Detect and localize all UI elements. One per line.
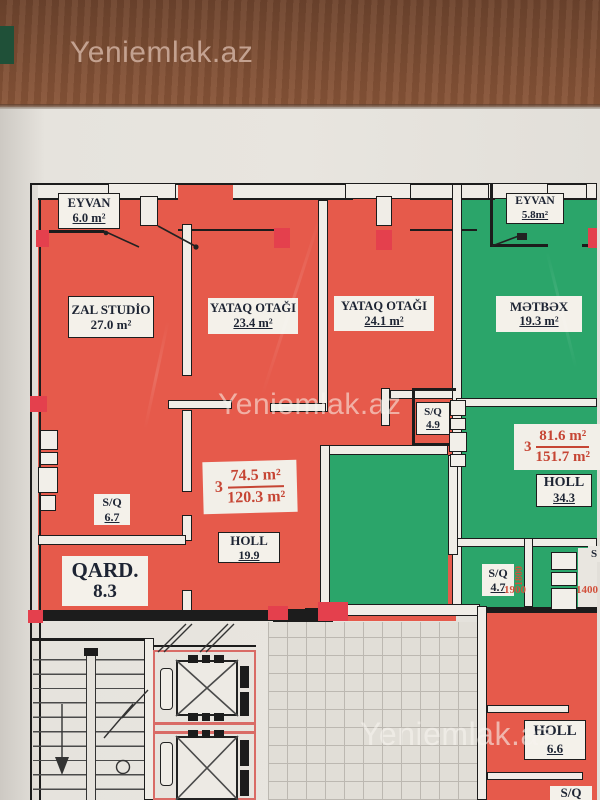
room-label-holl-199: HOLL 19.9: [218, 532, 280, 563]
bathroom-fixture: [38, 467, 58, 493]
elevator-guide-rail: [240, 692, 249, 716]
area-fraction: 81.6 m² 151.7 m²: [536, 427, 591, 467]
room-label-sq-67: S/Q 6.7: [94, 494, 130, 525]
room-area: 5.8m²: [522, 209, 548, 222]
wall-pillar: [376, 196, 392, 226]
wall-marker: [36, 230, 49, 247]
wall: [490, 184, 493, 246]
wall-marker: [376, 230, 392, 250]
wall-pillar: [586, 183, 597, 199]
room-name: HOLL: [230, 533, 268, 548]
room-name: S/Q: [561, 786, 582, 800]
elevator-shaft-divider: [155, 722, 254, 725]
wall: [182, 410, 192, 492]
dimension-1800: 1800: [514, 546, 528, 586]
elevator-door-part: [214, 713, 224, 721]
wall-marker: [28, 610, 43, 623]
room-area: 19.3 m²: [519, 314, 558, 329]
wall-marker: [274, 228, 290, 248]
living-area: 81.6 m²: [536, 427, 589, 448]
wall: [318, 200, 328, 412]
elevator-cab: [176, 736, 238, 800]
room-area: 23.4 m²: [233, 316, 272, 331]
wall: [448, 455, 458, 555]
room-area: 4.9: [426, 419, 440, 432]
room-label-sq-bottom-partial: S/Q: [550, 786, 592, 800]
room-name: EYVAN: [515, 195, 554, 209]
elevator-door-part: [202, 730, 210, 738]
room-label-metbex: MƏTBƏX 19.3 m²: [496, 296, 582, 332]
paper-edge-shadow: [0, 104, 600, 109]
wall-marker: [588, 228, 597, 248]
room-name: HOLL: [544, 475, 584, 492]
wall: [490, 244, 548, 247]
room-count: 3: [524, 439, 532, 456]
common-corridor-tiles: [268, 622, 478, 800]
floorplan-photo: Yeniemlak.az: [0, 0, 600, 800]
room-name: YATAQ OTAĞI: [210, 301, 296, 316]
elevator-guide-rail: [240, 666, 249, 688]
bathroom-fixture: [40, 430, 58, 450]
wall-marker: [30, 396, 47, 412]
room-area: 8.3: [93, 582, 117, 603]
elevator-guide-rail: [160, 742, 173, 786]
elevator-door-part: [188, 655, 198, 663]
room-label-yataq-2: YATAQ OTAĞI 24.1 m²: [334, 296, 434, 331]
closet-fixture: [551, 572, 577, 586]
room-name: S/Q: [488, 566, 507, 580]
elevator-guide-rail: [160, 668, 173, 710]
window-opening: [178, 185, 233, 198]
bathroom-fixture: [40, 495, 56, 511]
room-name: ZAL STUDİO: [71, 302, 150, 317]
wall: [320, 445, 330, 612]
bathroom-fixture: [40, 452, 58, 465]
room-area: 27.0 m²: [91, 317, 132, 332]
wall: [182, 224, 192, 376]
closet-fixture: [449, 432, 467, 452]
room-area: 34.3: [553, 491, 575, 506]
closet-fixture: [551, 588, 577, 610]
room-area: 6.0 m²: [73, 211, 106, 226]
elevator-door-part: [202, 655, 210, 663]
room-label-sq-partial: S: [588, 546, 600, 562]
room-name: EYVAN: [68, 196, 111, 211]
closet-fixture: [450, 400, 466, 416]
wall-marker: [318, 602, 348, 621]
closet-fixture: [551, 552, 577, 570]
watermark-top: Yeniemlak.az: [70, 36, 253, 70]
room-label-zal-studio: ZAL STUDİO 27.0 m²: [68, 296, 154, 338]
wall-marker: [268, 606, 288, 620]
elevator-door-part: [214, 730, 224, 738]
stair-rail-cap: [84, 648, 98, 656]
wall: [43, 610, 273, 621]
wall: [456, 398, 597, 407]
green-inner-room: [330, 455, 448, 605]
room-label-eyvan-red: EYVAN 6.0 m²: [58, 193, 120, 229]
closet-fixture: [450, 454, 466, 467]
wall: [330, 604, 480, 616]
table-corner-object: [0, 26, 14, 64]
room-area: 6.7: [105, 510, 120, 524]
wall-pillar: [140, 196, 158, 226]
total-area: 151.7 m²: [536, 448, 591, 467]
wall: [30, 638, 150, 641]
room-name: S: [591, 548, 597, 561]
room-label-sq-49: S/Q 4.9: [416, 402, 450, 435]
elevator-door-part: [214, 655, 224, 663]
wall: [487, 772, 583, 780]
room-name: S/Q: [102, 495, 121, 509]
wall: [153, 645, 256, 647]
room-label-holl-343: HOLL 34.3: [536, 474, 592, 507]
elevator-door-part: [188, 730, 198, 738]
room-name: QARD.: [71, 559, 138, 582]
room-label-eyvan-green: EYVAN 5.8m²: [506, 193, 564, 224]
dimension-1400: 1400: [576, 584, 600, 597]
watermark-middle: Yeniemlak.az: [218, 388, 401, 422]
room-label-qard: QARD. 8.3: [62, 556, 148, 606]
wall: [320, 445, 448, 455]
apartment-summary-red: 3 74.5 m² 120.3 m²: [202, 460, 297, 514]
wall: [487, 705, 569, 713]
elevator-guide-rail: [240, 770, 249, 796]
elevator-cab: [176, 660, 238, 716]
wall: [233, 198, 353, 200]
dimension-1900: 1900: [504, 584, 542, 597]
room-area: 19.9: [239, 548, 260, 562]
wall: [40, 230, 104, 233]
wall: [412, 388, 415, 445]
wall: [410, 229, 477, 231]
total-area: 120.3 m²: [227, 487, 286, 509]
room-area: 24.1 m²: [364, 314, 403, 329]
room-count: 3: [215, 479, 223, 497]
watermark-bottom: Yeniemlak.az: [360, 716, 555, 753]
wall: [412, 388, 456, 391]
room-name: YATAQ OTAĞI: [341, 299, 427, 314]
apartment-summary-green: 3 81.6 m² 151.7 m²: [514, 424, 600, 470]
living-area: 74.5 m²: [227, 465, 284, 488]
room-name: S/Q: [424, 406, 442, 419]
elevator-door-part: [188, 713, 198, 721]
wall: [38, 535, 186, 545]
elevator-door-part: [202, 713, 210, 721]
wall: [178, 229, 277, 231]
area-fraction: 74.5 m² 120.3 m²: [226, 465, 285, 509]
wall: [30, 183, 32, 800]
wall: [477, 606, 487, 800]
elevator-guide-rail: [240, 740, 249, 766]
stair-rail: [86, 652, 96, 800]
closet-fixture: [450, 418, 466, 430]
